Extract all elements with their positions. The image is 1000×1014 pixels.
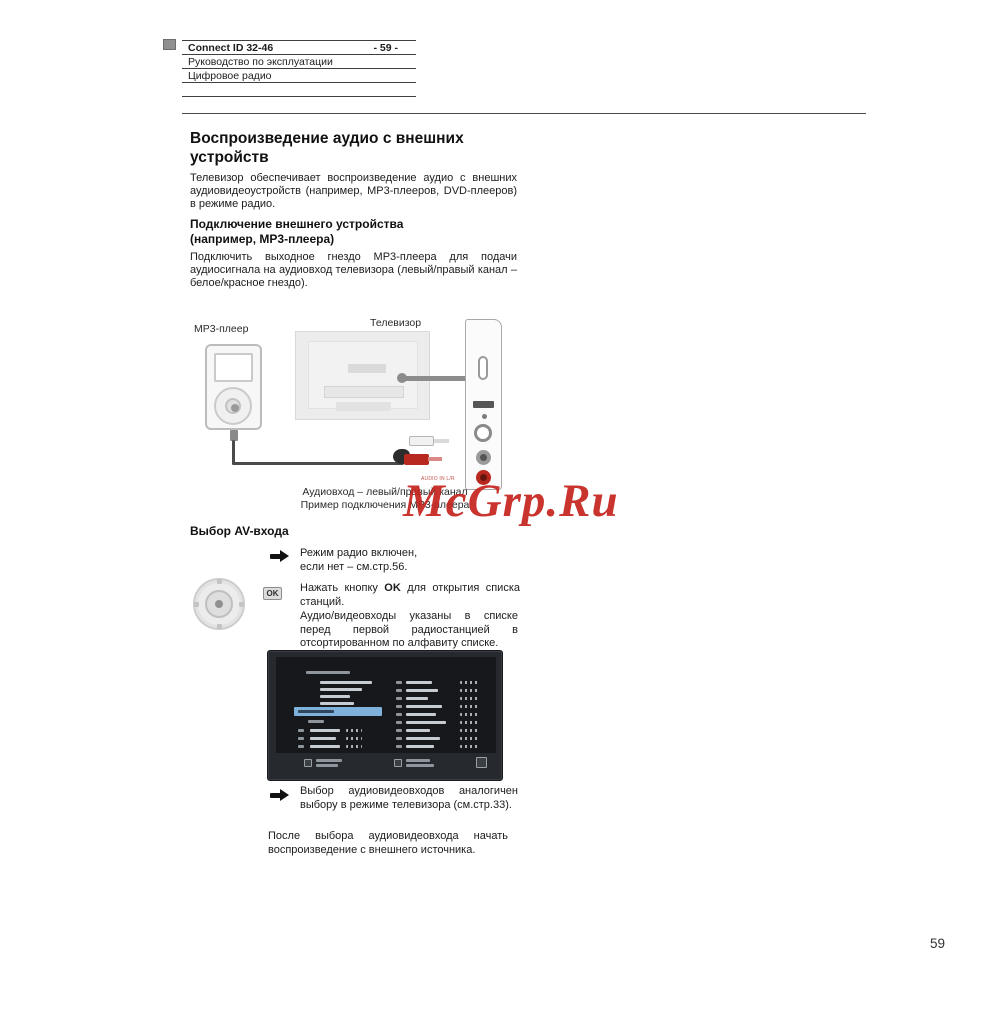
av-choice-note: Выбор аудиовидеовходов аналогичен выбору…	[300, 785, 518, 812]
screenshot-text-bar	[396, 713, 402, 716]
station-list-screenshot	[267, 650, 503, 781]
rca-plug-red	[404, 454, 429, 465]
connection-heading-line1: Подключение внешнего устройства	[190, 217, 403, 231]
screenshot-text-bar	[406, 729, 430, 732]
tv-label: Телевизор	[370, 317, 421, 329]
screenshot-text-bar	[460, 713, 480, 716]
screenshot-text-bar	[406, 759, 430, 762]
screenshot-text-bar	[298, 729, 304, 732]
list-info-paragraph: Аудио/видеовходы указаны в списке перед …	[300, 610, 518, 651]
page-number: 59	[930, 936, 945, 951]
section-title: Цифровое радио	[188, 70, 272, 82]
note-arrow-icon	[270, 789, 290, 801]
screenshot-text-bar	[396, 697, 402, 700]
screenshot-text-bar	[460, 721, 480, 724]
page-marker: - 59 -	[373, 42, 398, 54]
connection-diagram: MP3-плеер Телевизор	[190, 315, 520, 493]
screenshot-text-bar	[310, 737, 336, 740]
screenshot-text-bar	[460, 681, 480, 684]
screenshot-text-bar	[460, 729, 480, 732]
screenshot-text-bar	[298, 745, 304, 748]
screenshot-text-bar	[306, 671, 350, 674]
connection-paragraph: Подключить выходное гнездо MP3-плеера дл…	[190, 251, 517, 290]
screenshot-text-bar	[396, 705, 402, 708]
screenshot-text-bar	[346, 729, 362, 732]
screenshot-text-bar	[460, 697, 480, 700]
manual-title: Руководство по эксплуатации	[188, 56, 333, 68]
screenshot-text-bar	[396, 745, 402, 748]
screenshot-text-bar	[320, 702, 354, 705]
hdmi-slot	[478, 356, 488, 380]
press-ok-instruction: Нажать кнопку OK для открытия списка ста…	[300, 582, 520, 609]
screenshot-text-bar	[298, 737, 304, 740]
screenshot-text-bar	[406, 745, 434, 748]
panel-bar	[473, 401, 494, 408]
screenshot-text-bar	[346, 745, 362, 748]
panel-pointer-line	[402, 376, 468, 381]
screenshot-text-bar	[320, 695, 350, 698]
closing-paragraph: После выбора аудиовидеовхода начать восп…	[268, 830, 508, 857]
connection-heading-line2: (например, MP3-плеера)	[190, 232, 334, 246]
note-arrow-icon	[270, 550, 290, 562]
screenshot-text-bar	[396, 737, 402, 740]
av-selection-heading: Выбор AV-входа	[190, 524, 289, 538]
screenshot-text-bar	[308, 720, 324, 723]
screenshot-text-bar	[320, 681, 372, 684]
screenshot-text-bar	[406, 737, 440, 740]
panel-dot	[482, 414, 487, 419]
screenshot-text-bar	[298, 710, 334, 713]
screenshot-text-bar	[406, 721, 446, 724]
screenshot-text-bar	[310, 729, 340, 732]
audio-left-jack	[476, 450, 491, 465]
mp3-player-illustration	[205, 344, 262, 430]
screenshot-text-bar	[396, 689, 402, 692]
antenna-jack	[474, 424, 492, 442]
ok-key-label: OK	[384, 582, 401, 594]
screenshot-text-bar	[460, 705, 480, 708]
screenshot-text-bar	[310, 745, 340, 748]
ok-button-icon: OK	[263, 587, 282, 600]
radio-mode-note: Режим радио включен, если нет – см.стр.5…	[300, 547, 450, 574]
product-name: Connect ID 32-46	[188, 42, 273, 54]
screenshot-text-bar	[406, 681, 432, 684]
watermark-text: McGrp.Ru	[403, 474, 619, 528]
screenshot-text-bar	[460, 737, 480, 740]
screenshot-text-bar	[460, 689, 480, 692]
screenshot-text-bar	[394, 759, 402, 767]
audio-cable-horizontal	[232, 462, 404, 465]
mp3-click-wheel	[214, 387, 252, 425]
header-row-section: Цифровое радио	[182, 68, 416, 82]
screenshot-text-bar	[406, 697, 428, 700]
connection-heading: Подключение внешнего устройства (наприме…	[190, 217, 525, 246]
screenshot-text-bar	[406, 764, 434, 767]
screenshot-text-bar	[476, 757, 487, 768]
screenshot-text-bar	[460, 745, 480, 748]
manual-page: Connect ID 32-46 - 59 - Руководство по э…	[0, 0, 1000, 1014]
rca-plug-white	[409, 436, 434, 446]
header-row-manual: Руководство по эксплуатации	[182, 54, 416, 68]
screenshot-text-bar	[406, 689, 438, 692]
screenshot-text-bar	[396, 721, 402, 724]
screenshot-text-bar	[304, 759, 312, 767]
tv-connection-panel	[465, 319, 502, 490]
header-rule	[182, 113, 866, 114]
screenshot-text-bar	[406, 705, 442, 708]
screenshot-text-bar	[406, 713, 436, 716]
header-row-product: Connect ID 32-46 - 59 -	[182, 40, 416, 54]
screenshot-text-bar	[320, 688, 362, 691]
mp3-player-label: MP3-плеер	[194, 323, 248, 335]
intro-paragraph: Телевизор обеспечивает воспроизведение а…	[190, 172, 517, 211]
remote-dial-icon	[193, 578, 245, 630]
screenshot-text-bar	[396, 729, 402, 732]
header-bullet-icon	[163, 39, 176, 50]
screenshot-text-bar	[316, 759, 342, 762]
mp3-screen	[214, 353, 253, 382]
page-title: Воспроизведение аудио с внешних устройст…	[190, 129, 525, 167]
header-block: Connect ID 32-46 - 59 - Руководство по э…	[182, 40, 416, 97]
screenshot-text-bar	[396, 681, 402, 684]
header-row-empty	[182, 82, 416, 97]
radio-mode-note-line2: если нет – см.стр.56.	[300, 561, 450, 575]
radio-mode-note-line1: Режим радио включен,	[300, 547, 450, 561]
screenshot-text-bar	[316, 764, 338, 767]
screenshot-text-bar	[346, 737, 362, 740]
